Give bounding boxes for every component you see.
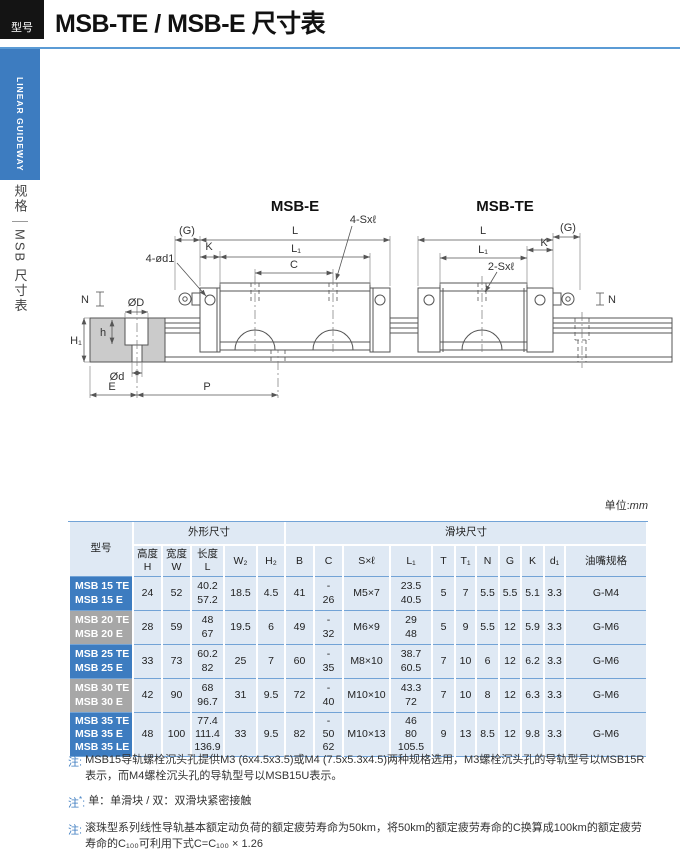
cell: 23.5 40.5 [391, 577, 431, 611]
header-rule [0, 47, 680, 49]
dim-label-e-k: K [205, 241, 213, 253]
note-item: 注: MSB15导轨螺栓沉头孔提供M3 (6x4.5x3.5)或M4 (7.5x… [68, 753, 652, 785]
col-header: T [433, 546, 454, 577]
dim-label-e-n: N [81, 294, 89, 306]
cell: 3.3 [545, 713, 564, 757]
cell: 100 [163, 713, 190, 757]
col-header: G [500, 546, 520, 577]
cell: M5×7 [344, 577, 389, 611]
dim-label-h: h [100, 327, 106, 339]
sidebar-section: 规格 MSB 尺寸表 [0, 184, 40, 314]
dim-label-te-l1: L₁ [478, 244, 488, 256]
cell: 3.3 [545, 679, 564, 713]
table-row: MSB 35 TE MSB 35 E MSB 35 LE 48 100 77.4… [70, 713, 646, 757]
msb-e-carriage [179, 276, 390, 352]
cell: G-M4 [566, 577, 646, 611]
footnotes: 注: MSB15导轨螺栓沉头孔提供M3 (6x4.5x3.5)或M4 (7.5x… [68, 753, 652, 862]
cell: 43.3 72 [391, 679, 431, 713]
cell: 24 [134, 577, 161, 611]
group-header-outer: 外形尺寸 [134, 522, 284, 546]
cell: 31 [225, 679, 256, 713]
cell: 3.3 [545, 645, 564, 679]
dim-label-e-l: L [292, 225, 298, 237]
cell: 5.1 [522, 577, 543, 611]
cell: 52 [163, 577, 190, 611]
cell: 77.4 111.4 136.9 [192, 713, 223, 757]
dimension-table-wrap: 型号 外形尺寸 滑块尺寸 高度 H 宽度 W 长度 L W₂ H₂ B C S×… [68, 521, 648, 757]
col-header: T₁ [456, 546, 475, 577]
cell: M6×9 [344, 611, 389, 645]
msb-te-carriage [418, 276, 574, 352]
cell: 6 [258, 611, 284, 645]
cell: 7 [258, 645, 284, 679]
note-item: 注*: 单：单滑块 / 双：双滑块紧密接触 [68, 794, 652, 813]
cell: 6.3 [522, 679, 543, 713]
col-header: B [286, 546, 313, 577]
cell: G-M6 [566, 713, 646, 757]
cell: 42 [134, 679, 161, 713]
cell: G-M6 [566, 645, 646, 679]
cell: 40.2 57.2 [192, 577, 223, 611]
technical-diagram: MSB-E MSB-TE (G) K L L₁ C 4-Sxℓ 4-ød1 N [70, 190, 680, 418]
cell: 60 [286, 645, 313, 679]
diagram-title-msb-te: MSB-TE [476, 198, 534, 215]
col-header: N [477, 546, 498, 577]
cell: 9.8 [522, 713, 543, 757]
group-header-block: 滑块尺寸 [286, 522, 646, 546]
note-text: 单：单滑块 / 双：双滑块紧密接触 [88, 794, 652, 813]
cell: 3.3 [545, 577, 564, 611]
cell: 5.9 [522, 611, 543, 645]
cell: 68 96.7 [192, 679, 223, 713]
col-header: L₁ [391, 546, 431, 577]
note-label: 注: [68, 821, 82, 853]
col-header: W₂ [225, 546, 256, 577]
cell: 29 48 [391, 611, 431, 645]
cell: G-M6 [566, 679, 646, 713]
cell: 9 [433, 713, 454, 757]
sidebar-category-label: LINEAR GUIDEWAY [15, 77, 25, 172]
cell: 59 [163, 611, 190, 645]
col-header: 宽度 W [163, 546, 190, 577]
col-header: C [315, 546, 342, 577]
cell: 41 [286, 577, 313, 611]
cell: 38.7 60.5 [391, 645, 431, 679]
col-header: S×ℓ [344, 546, 389, 577]
sidebar-subsection-label: MSB 尺寸表 [11, 229, 30, 314]
cell: 5.5 [500, 577, 520, 611]
table-row: MSB 15 TE MSB 15 E 24 52 40.2 57.2 18.5 … [70, 577, 646, 611]
cell: 28 [134, 611, 161, 645]
cell: 9.5 [258, 713, 284, 757]
row-model-label: MSB 30 TE MSB 30 E [70, 679, 132, 713]
dim-label-p: P [203, 381, 210, 393]
table-row: MSB 30 TE MSB 30 E 42 90 68 96.7 31 9.5 … [70, 679, 646, 713]
cell: 9.5 [258, 679, 284, 713]
cell: 18.5 [225, 577, 256, 611]
cell: 3.3 [545, 611, 564, 645]
cell: 6.2 [522, 645, 543, 679]
cell: 12 [500, 679, 520, 713]
page-title: MSB-TE / MSB-E 尺寸表 [55, 4, 325, 40]
cell: 25 [225, 645, 256, 679]
dim-label-h1: H₁ [70, 335, 82, 347]
cell: 48 67 [192, 611, 223, 645]
cell: - 32 [315, 611, 342, 645]
dim-label-od-top: ØD [128, 297, 145, 309]
cell: 82 [286, 713, 313, 757]
cell: M10×13 [344, 713, 389, 757]
cell: 19.5 [225, 611, 256, 645]
dim-label-te-g: (G) [560, 222, 576, 234]
cell: M10×10 [344, 679, 389, 713]
cell: 5 [433, 611, 454, 645]
col-header: 长度 L [192, 546, 223, 577]
cell: G-M6 [566, 611, 646, 645]
cell: 6 [477, 645, 498, 679]
cell: - 50 62 [315, 713, 342, 757]
col-header: K [522, 546, 543, 577]
cell: 9 [456, 611, 475, 645]
diagram-title-msb-e: MSB-E [271, 198, 319, 215]
rail-cross-section [90, 306, 165, 398]
note-text: 滚珠型系列线性导轨基本额定动负荷的额定疲劳寿命为50km，将50km的额定疲劳寿… [85, 821, 652, 853]
cell: - 26 [315, 577, 342, 611]
dim-label-te-l: L [480, 225, 486, 237]
cell: 8.5 [477, 713, 498, 757]
cell: 5.5 [477, 577, 498, 611]
note-item: 注: 滚珠型系列线性导轨基本额定动负荷的额定疲劳寿命为50km，将50km的额定… [68, 821, 652, 853]
table-row: MSB 25 TE MSB 25 E 33 73 60.2 82 25 7 60… [70, 645, 646, 679]
cell: - 35 [315, 645, 342, 679]
cell: 33 [134, 645, 161, 679]
row-model-label: MSB 15 TE MSB 15 E [70, 577, 132, 611]
cell: 10 [456, 679, 475, 713]
cell: 12 [500, 713, 520, 757]
cell: 7 [433, 679, 454, 713]
dim-label-e-c: C [290, 259, 298, 271]
row-model-label: MSB 35 TE MSB 35 E MSB 35 LE [70, 713, 132, 757]
cell: 12 [500, 645, 520, 679]
table-row: MSB 20 TE MSB 20 E 28 59 48 67 19.5 6 49… [70, 611, 646, 645]
col-header: d₁ [545, 546, 564, 577]
row-model-label: MSB 20 TE MSB 20 E [70, 611, 132, 645]
cell: 8 [477, 679, 498, 713]
dim-label-e-od1: 4-ød1 [146, 253, 175, 265]
dimension-table: 型号 外形尺寸 滑块尺寸 高度 H 宽度 W 长度 L W₂ H₂ B C S×… [68, 522, 648, 757]
cell: 5.5 [477, 611, 498, 645]
dim-label-e-l1: L₁ [291, 243, 301, 255]
cell: 46 80 105.5 [391, 713, 431, 757]
dim-label-e-sxl: 4-Sxℓ [350, 214, 377, 226]
sidebar-category-tab: LINEAR GUIDEWAY [0, 49, 40, 180]
sidebar-section-label: 规格 [11, 184, 30, 214]
cell: 72 [286, 679, 313, 713]
col-header: 高度 H [134, 546, 161, 577]
note-label: 注*: [68, 794, 85, 813]
cell: 13 [456, 713, 475, 757]
cell: 4.5 [258, 577, 284, 611]
cell: 5 [433, 577, 454, 611]
unit-note: 单位:mm [605, 497, 648, 513]
cell: 48 [134, 713, 161, 757]
cell: M8×10 [344, 645, 389, 679]
unit-label: 单位: [605, 500, 630, 512]
cell: 60.2 82 [192, 645, 223, 679]
model-badge: 型号 [0, 0, 44, 39]
row-model-label: MSB 25 TE MSB 25 E [70, 645, 132, 679]
note-text: MSB15导轨螺栓沉头孔提供M3 (6x4.5x3.5)或M4 (7.5x5.3… [85, 753, 652, 785]
col-header-model: 型号 [70, 522, 132, 577]
cell: 7 [456, 577, 475, 611]
sidebar-divider [12, 221, 28, 222]
col-header: 油嘴规格 [566, 546, 646, 577]
dim-label-e-g: (G) [179, 225, 195, 237]
col-header: H₂ [258, 546, 284, 577]
cell: 90 [163, 679, 190, 713]
cell: 10 [456, 645, 475, 679]
cell: 49 [286, 611, 313, 645]
cell: 73 [163, 645, 190, 679]
cell: - 40 [315, 679, 342, 713]
dim-label-e: E [108, 381, 115, 393]
cell: 7 [433, 645, 454, 679]
note-label: 注: [68, 753, 82, 785]
dim-label-te-sxl: 2-Sxℓ [488, 261, 515, 273]
cell: 33 [225, 713, 256, 757]
unit-value: mm [630, 500, 648, 512]
cell: 12 [500, 611, 520, 645]
dim-label-te-k: K [540, 237, 548, 249]
dim-label-te-n: N [608, 294, 616, 306]
